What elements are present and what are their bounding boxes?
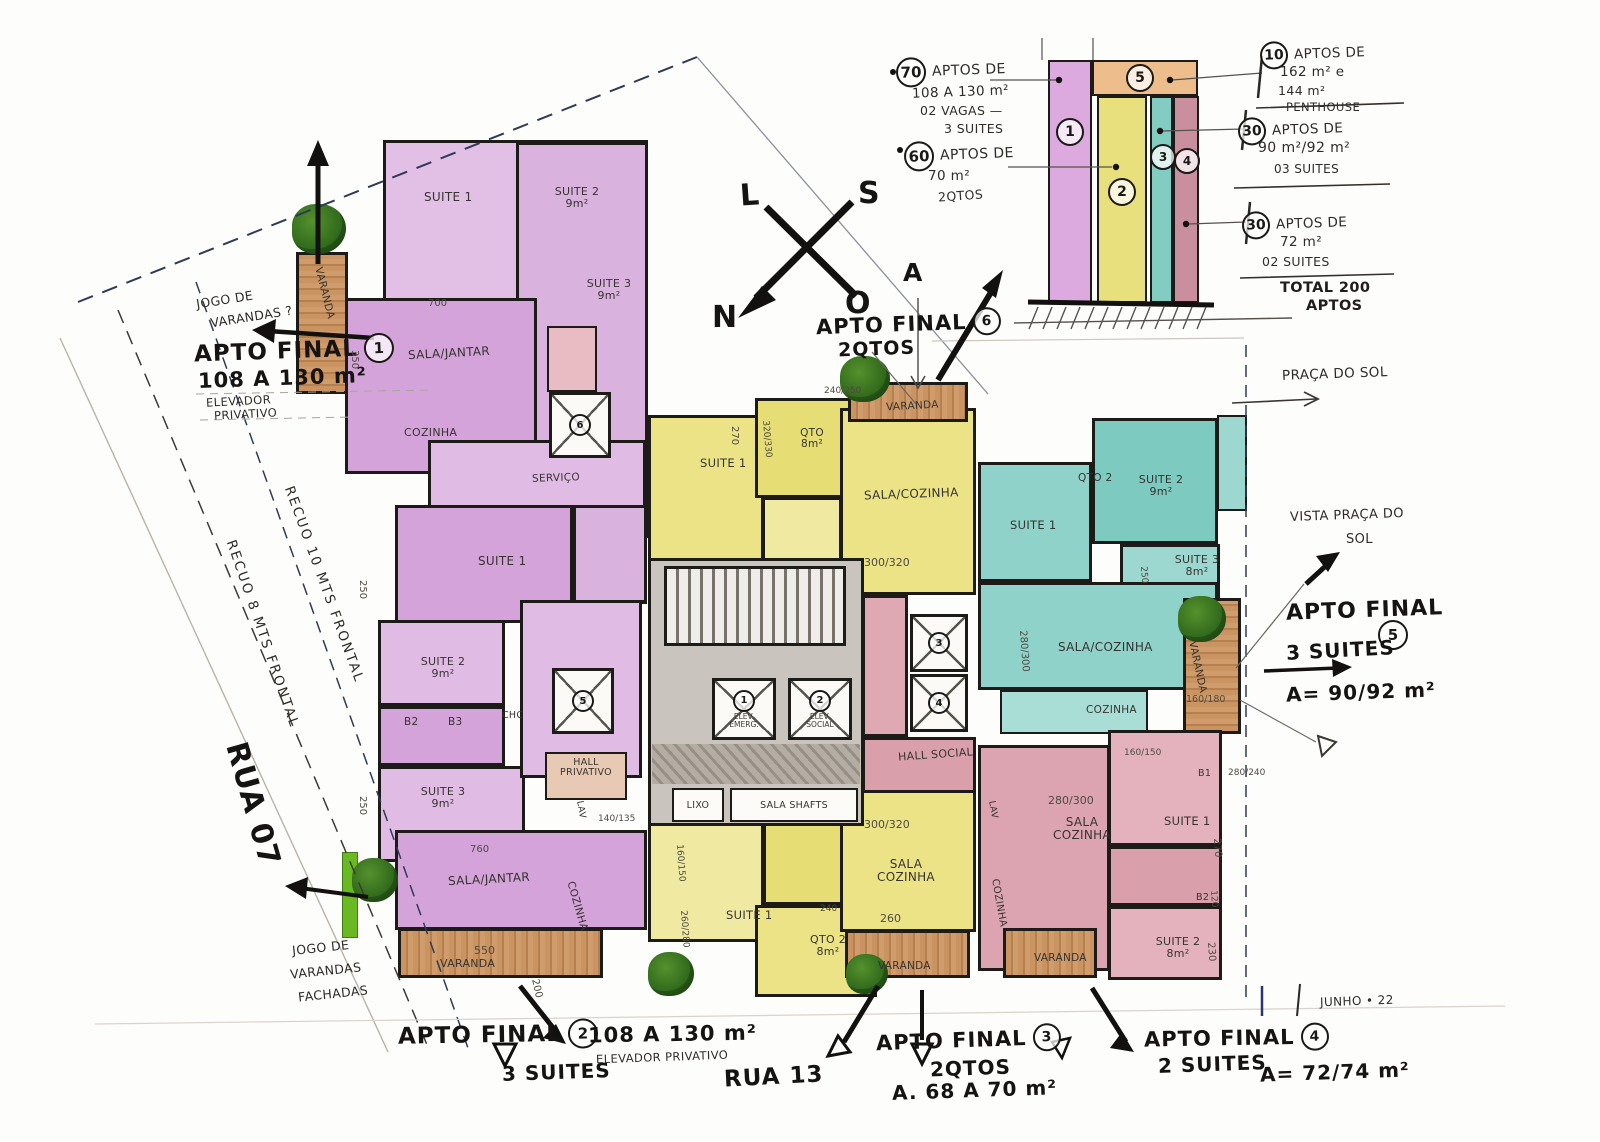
room-label: SALA/COZINHA [1058, 640, 1153, 654]
apto3-title: APTO FINAL [876, 1026, 1027, 1055]
shaft-3: 3 [910, 614, 968, 672]
elevator-1-label2: EMERG. [729, 721, 758, 729]
room-label: SUITE 2 9m² [1132, 474, 1190, 498]
praca-do-sol-label: PRAÇA DO SOL [1282, 364, 1388, 384]
tree-icon [352, 858, 398, 902]
room-label: SALA COZINHA [872, 858, 940, 884]
recuo-10-label: RECUO 10 MTS FRONTAL [281, 484, 367, 685]
shaft-4: 4 [910, 674, 968, 732]
apto6-rooms: 2QTOS [838, 337, 916, 362]
tower-note-30b-count: 30 [1242, 211, 1271, 240]
compass-s: S [858, 176, 881, 211]
apto2-sub: ELEVADOR PRIVATIVO [596, 1048, 729, 1067]
tower-note-30b-l3: 02 SUITES [1262, 254, 1330, 269]
room-label: HALL PRIVATIVO [550, 758, 622, 779]
tower-note-30a-l3: 03 SUITES [1274, 162, 1339, 176]
room-label: SERVIÇO [532, 471, 580, 485]
room-label: CHC [502, 710, 523, 721]
room-label: SUITE 1 [700, 456, 746, 470]
elevator-2-label2: SOCIAL [806, 721, 833, 729]
room-label: SUITE 3 8m² [1168, 554, 1226, 578]
callout-apto3: APTO FINAL 3 [876, 1023, 1061, 1057]
apto3-area: A. 68 A 70 m² [892, 1075, 1058, 1105]
room-label: COZINHA [404, 426, 457, 439]
tower-note-60-l1: APTOS DE [940, 145, 1014, 164]
dimension-label: 700 [428, 298, 447, 309]
room-label: LAV [574, 800, 587, 819]
elevator-2-label: ELEV. [810, 713, 830, 721]
elevator-2-number: 2 [809, 690, 831, 712]
room-label: SUITE 1 [1010, 518, 1056, 532]
room-label: SUITE 1 [726, 908, 772, 922]
apto2-area: 108 A 130 m² [588, 1021, 757, 1048]
dimension-label: 240 [820, 904, 837, 914]
tower-note-70-l1: APTOS DE [932, 61, 1006, 80]
stairs [664, 566, 846, 646]
dimension-label: 350 [349, 350, 360, 369]
room-label: VARANDA [878, 960, 931, 972]
apt2-varanda-block [398, 928, 603, 978]
apto3-number-badge: 3 [1032, 1023, 1061, 1052]
compass-n: N [712, 300, 738, 335]
room-label: B3 [448, 716, 462, 728]
shaft-4-number: 4 [928, 692, 950, 714]
tower-total-line2: APTOS [1306, 298, 1363, 314]
room-label: B2 [404, 716, 418, 728]
dimension-label: 760 [470, 844, 489, 855]
shaft-5: 5 [552, 668, 614, 734]
apt5-sala-block [978, 582, 1218, 690]
apto2-title: APTO FINAL [398, 1021, 562, 1050]
dimension-label: 160/150 [1124, 748, 1161, 758]
tower-column-4 [1173, 96, 1199, 303]
callout-apto4: APTO FINAL 4 [1144, 1022, 1329, 1053]
tree-icon [292, 204, 346, 254]
apto1-title: APTO FINAL [194, 336, 359, 368]
apt2-baths-block [378, 706, 505, 766]
callout-apto2: APTO FINAL 2 [398, 1018, 598, 1051]
tower-unit-5-badge: 5 [1126, 64, 1154, 92]
dimension-label: 550 [474, 944, 495, 957]
dimension-label: 120 [1208, 890, 1219, 908]
elevator-1-label: ELEV. [734, 713, 754, 721]
apto4-area: A= 72/74 m² [1260, 1057, 1410, 1086]
tower-note-30a-l2: 90 m²/92 m² [1258, 140, 1350, 156]
room-label: SUITE 1 [478, 554, 526, 568]
room-label: VARANDA [1034, 952, 1087, 964]
tower-note-60-l3: 2QTOS [938, 186, 984, 204]
room-label: SUITE 1 [1164, 814, 1210, 828]
tower-note-10-l2: 162 m² e [1280, 64, 1344, 80]
apto4-title: APTO FINAL [1144, 1025, 1295, 1052]
apt2-upper-right-block [573, 505, 647, 603]
room-label: SUITE 1 [424, 190, 472, 204]
apto4-number-badge: 4 [1300, 1022, 1328, 1050]
elevator-1-emergency: 1 ELEV. EMERG. [712, 678, 776, 740]
room-label: COZINHA [1086, 704, 1137, 716]
dimension-label: 200 [529, 978, 544, 999]
tower-note-60-l2: 70 m² [928, 168, 970, 184]
tower-note-70-l2: 108 A 130 m² [912, 82, 1010, 101]
apto5-suites: 3 SUITES [1285, 635, 1395, 665]
apto4-suites: 2 SUITES [1158, 1050, 1267, 1078]
tower-note-70-count: 70 [896, 57, 927, 88]
room-label: VARANDA [440, 957, 495, 970]
tower-note-10-l4: PENTHOUSE [1286, 100, 1360, 114]
room-label: SUITE 2 9m² [548, 186, 606, 210]
apt5-wc-block [1217, 415, 1247, 511]
rua-07-label: RUA 07 [218, 738, 287, 871]
dimension-label: 260 [880, 912, 901, 925]
tree-icon [648, 952, 694, 996]
tree-icon [1178, 596, 1226, 642]
room-label: QTO 8m² [788, 428, 836, 451]
room-label: SUITE 3 9m² [580, 278, 638, 302]
dimension-label: 270 [1211, 838, 1223, 858]
rua-13-label: RUA 13 [723, 1061, 824, 1092]
room-label: SUITE 2 9m² [414, 656, 472, 680]
room-label: SALA COZINHA [1046, 816, 1118, 842]
dimension-label: 250 [357, 580, 368, 599]
compass-l: L [739, 177, 762, 213]
tower-unit-4-badge: 4 [1174, 148, 1200, 174]
jogo-fachadas-line2: VARANDAS [289, 959, 362, 981]
tower-column-1 [1048, 60, 1092, 303]
apto5-title: APTO FINAL [1286, 595, 1444, 625]
jogo-fachadas-line3: FACHADAS [297, 982, 368, 1004]
dimension-label: 160/180 [1186, 694, 1225, 705]
tower-note-30a-l1: APTOS DE [1272, 120, 1344, 138]
apto5-area: A= 90/92 m² [1286, 677, 1436, 706]
tower-total-line1: TOTAL 200 [1280, 280, 1370, 296]
tower-note-70-l4: 3 SUITES [944, 121, 1003, 136]
apto1-note1: JOGO DE [195, 288, 254, 312]
shaft-3-number: 3 [928, 632, 950, 654]
section-marker-a: A [903, 258, 923, 287]
dimension-label: 240/250 [824, 386, 861, 396]
elevator-1-number: 1 [733, 690, 755, 712]
room-label: SUITE 3 9m² [414, 786, 472, 810]
room-label: B1 [1198, 768, 1211, 779]
dimension-label: 250 [357, 796, 368, 815]
tower-unit-3-badge: 3 [1150, 144, 1176, 170]
apt1-bath-block [547, 326, 597, 392]
dimension-label: 140/135 [598, 814, 635, 824]
tower-note-10-l1: APTOS DE [1294, 44, 1366, 62]
tower-note-30b-l1: APTOS DE [1276, 214, 1348, 232]
tower-unit-2-badge: 2 [1108, 178, 1136, 206]
date-note: JUNHO • 22 [1320, 993, 1394, 1010]
tower-note-10-l3: 144 m² [1278, 83, 1325, 98]
tower-column-3 [1150, 96, 1173, 303]
dimension-label: 270 [729, 426, 740, 445]
jogo-fachadas-line1: JOGO DE [291, 937, 350, 958]
room-label: QTO 2 8m² [802, 934, 854, 958]
apto2-suites: 3 SUITES [502, 1058, 611, 1086]
lixo-room: LIXO [672, 788, 724, 822]
dimension-label: 230 [1205, 942, 1217, 962]
room-label: SUITE 2 8m² [1148, 936, 1208, 960]
apto1-sub2: PRIVATIVO [214, 405, 278, 422]
recuo-8-label: RECUO 8 MTS FRONTAL [223, 538, 302, 730]
tower-unit-1-badge: 1 [1056, 118, 1084, 146]
apto6-number-badge: 6 [972, 307, 1001, 336]
shaft-6-number: 6 [569, 414, 591, 436]
dimension-label: 280/240 [1228, 768, 1265, 778]
shaft-6: 6 [549, 392, 611, 458]
hall-strip-block [862, 595, 908, 737]
lixo-label: LIXO [687, 800, 710, 811]
apto1-number-badge: 1 [363, 333, 394, 364]
dimension-label: 300/320 [864, 818, 910, 831]
dimension-label: 300/320 [864, 556, 910, 569]
vista-praca-line2: SOL [1346, 532, 1373, 547]
dimension-label: 250 [1138, 566, 1149, 584]
elevator-2-social: 2 ELEV. SOCIAL [788, 678, 852, 740]
tower-note-70-l3: 02 VAGAS — [920, 103, 1003, 118]
shafts-label: SALA SHAFTS [760, 800, 828, 811]
room-label: QTO 2 [1078, 472, 1112, 484]
apto6-title: APTO FINAL [816, 310, 967, 339]
floor-plan-sketch: 1 ELEV. EMERG. 2 ELEV. SOCIAL 3 4 5 6 LI… [0, 0, 1600, 1142]
shaft-5-number: 5 [572, 690, 594, 712]
room-label: B2 [1196, 892, 1209, 903]
vista-praca-line1: VISTA PRAÇA DO [1290, 506, 1404, 525]
shafts-room: SALA SHAFTS [730, 788, 858, 822]
core-corridor [652, 744, 860, 784]
tower-note-60: 60 APTOS DE [904, 138, 1015, 172]
dimension-label: 280/300 [1048, 794, 1094, 807]
tower-note-30b-l2: 72 m² [1280, 234, 1322, 250]
